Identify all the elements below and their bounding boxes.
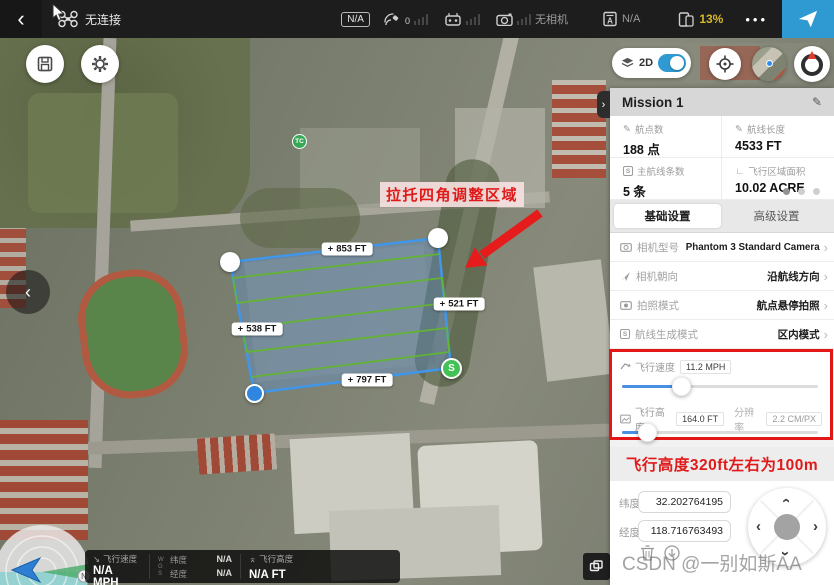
latitude-label: 纬度 xyxy=(619,496,640,511)
telemetry-speed: ↘飞行速度 N/A MPH xyxy=(85,550,149,583)
mission-header: Mission 1 ✎ xyxy=(610,88,834,116)
camera-icon xyxy=(496,13,513,26)
speed-slider-track[interactable] xyxy=(622,385,818,388)
map-mode-toggle[interactable]: 2D xyxy=(612,48,691,78)
mode-toggle-switch[interactable] xyxy=(658,54,686,72)
map-red-roofs xyxy=(197,433,277,474)
longitude-label: 经度 xyxy=(619,525,640,540)
chevron-left-icon: ‹ xyxy=(17,6,24,32)
start-point-marker[interactable]: S xyxy=(441,358,462,379)
back-button[interactable]: ‹ xyxy=(0,0,42,38)
speed-arrow-icon: ↘ xyxy=(93,554,100,565)
resolution-value: 2.2 CM/PX xyxy=(766,412,822,426)
move-cross-icon: + xyxy=(440,299,446,310)
stat-route-length: ✎航线长度 4533 FT xyxy=(722,116,834,158)
corner-handle[interactable] xyxy=(220,252,240,272)
telemetry-coords: WGS 纬度N/A 经度N/A xyxy=(150,550,240,583)
camera-status: 无相机 xyxy=(496,11,568,27)
nudge-left-button[interactable]: ‹ xyxy=(756,519,761,534)
corner-handle[interactable] xyxy=(428,228,448,248)
crosshair-icon xyxy=(716,55,734,73)
telemetry-bar: ↘飞行速度 N/A MPH WGS 纬度N/A 经度N/A ⌅飞行高度 N/A … xyxy=(85,550,400,583)
more-menu-button[interactable]: ••• xyxy=(745,12,768,27)
mission-panel: › Mission 1 ✎ ✎航点数 188 点 ✎航线长度 4533 FT S… xyxy=(610,88,834,585)
panel-collapse-tab[interactable]: › xyxy=(597,91,610,118)
save-mission-button[interactable] xyxy=(26,45,64,83)
chevron-left-icon: ‹ xyxy=(25,282,31,303)
drag-corners-hint: 拉托四角调整区域 xyxy=(380,182,524,207)
stat-waypoints: ✎航点数 188 点 xyxy=(610,116,722,158)
route-pen-icon: ✎ xyxy=(735,124,743,135)
satellite-count: 0 xyxy=(405,16,410,26)
chevron-right-icon: › xyxy=(824,240,828,255)
route-mode-icon: S xyxy=(620,329,630,339)
battery-device-icon xyxy=(678,11,695,28)
save-icon xyxy=(36,55,54,73)
move-cross-icon: + xyxy=(348,375,354,386)
collapse-left-button[interactable]: ‹ xyxy=(6,270,50,314)
move-cross-icon: + xyxy=(238,324,244,335)
altitude-icon xyxy=(620,414,631,424)
stats-page-dots[interactable] xyxy=(783,188,820,195)
chevron-right-icon: › xyxy=(602,99,606,111)
minimap-button[interactable] xyxy=(752,47,786,81)
battery-percent: 13% xyxy=(699,12,723,26)
speed-slider-row: 飞行速度 11.2 MPH xyxy=(620,359,822,374)
altitude-icon: ⌅ xyxy=(249,554,256,565)
move-cross-icon: + xyxy=(328,244,334,255)
speed-icon xyxy=(620,361,631,372)
gps-status: 0 xyxy=(384,12,428,27)
altitude-value-field[interactable]: 164.0 FT xyxy=(676,412,724,426)
setting-camera-orientation[interactable]: 相机朝向 沿航线方向 › xyxy=(610,262,834,291)
map-poi-marker: TC xyxy=(292,134,307,149)
speed-slider-thumb[interactable] xyxy=(672,377,691,396)
remote-controller-icon xyxy=(444,12,462,26)
edge-length-label[interactable]: +797 FT xyxy=(342,374,393,387)
map-red-roofs xyxy=(0,420,88,540)
edge-length-label[interactable]: +853 FT xyxy=(322,243,373,256)
connection-label: 无连接 xyxy=(85,11,121,28)
rc-status xyxy=(444,12,480,26)
checklist-icon: A xyxy=(602,11,618,27)
tab-basic-settings[interactable]: 基础设置 xyxy=(614,204,721,228)
nudge-center-button[interactable] xyxy=(774,514,800,540)
settings-button[interactable] xyxy=(81,45,119,83)
map-buildings xyxy=(244,244,436,382)
setting-route-mode[interactable]: S 航线生成模式 区内模式 › xyxy=(610,320,834,349)
altitude-note: 飞行高度320ft左右为100m xyxy=(610,447,834,481)
ruler-icon: ∟ xyxy=(735,166,744,177)
takeoff-button[interactable] xyxy=(782,0,834,38)
tab-advanced-settings[interactable]: 高级设置 xyxy=(723,204,830,228)
speed-value-field[interactable]: 11.2 MPH xyxy=(680,360,731,374)
copy-icon xyxy=(589,559,604,574)
mission-stats: ✎航点数 188 点 ✎航线长度 4533 FT S主航线条数 5 条 ∟飞行区… xyxy=(610,116,834,200)
toggle-knob xyxy=(670,56,684,70)
csdn-watermark: CSDN @一别如斯AA xyxy=(622,549,834,576)
locate-button[interactable] xyxy=(709,48,741,80)
waypoint-pen-icon: ✎ xyxy=(623,124,631,135)
setting-camera-model[interactable]: 相机型号 Phantom 3 Standard Camera › xyxy=(610,233,834,262)
checklist-value: N/A xyxy=(622,13,640,25)
lines-icon: S xyxy=(623,166,633,176)
camera-icon xyxy=(620,242,632,252)
chevron-right-icon: › xyxy=(824,298,828,313)
hint-text: 拉托四角调整区域 xyxy=(386,184,518,205)
top-status-bar: ‹ 无连接 N/A 0 xyxy=(0,0,834,38)
layers-icon xyxy=(621,56,634,70)
map-trees-patch xyxy=(240,188,360,248)
checklist-status: A N/A xyxy=(602,11,640,27)
rc-signal-bars xyxy=(466,14,480,25)
camera-status-label: 无相机 xyxy=(535,11,568,27)
screenshot-copy-button[interactable] xyxy=(583,553,610,580)
corner-handle-selected[interactable] xyxy=(245,384,264,403)
photo-mode-icon xyxy=(620,300,632,310)
settings-tabs: 基础设置 高级设置 xyxy=(610,200,834,233)
wgs-label: WGS xyxy=(158,557,166,578)
direction-arrow-icon xyxy=(620,271,631,282)
battery-status: 13% xyxy=(678,11,723,28)
latitude-field[interactable]: 32.202764195 xyxy=(638,491,731,513)
telemetry-altitude: ⌅飞行高度 N/A FT xyxy=(241,550,323,583)
longitude-field[interactable]: 118.716763493 xyxy=(638,520,731,542)
altitude-slider-track[interactable] xyxy=(622,431,818,434)
gear-icon xyxy=(90,54,110,74)
satellite-icon xyxy=(384,12,401,27)
compass-needle-icon xyxy=(797,49,827,79)
map-buildings xyxy=(533,259,615,381)
gps-signal-bars xyxy=(414,14,428,25)
attitude-compass: N xyxy=(0,524,92,585)
mouse-cursor xyxy=(52,4,66,22)
compass-reset-button[interactable] xyxy=(794,46,830,82)
chevron-right-icon: › xyxy=(824,269,828,284)
edit-mission-icon[interactable]: ✎ xyxy=(812,95,822,109)
altitude-slider-thumb[interactable] xyxy=(638,423,657,442)
minimap-position-dot xyxy=(766,60,773,67)
connection-status: 无连接 xyxy=(58,10,121,28)
chevron-right-icon: › xyxy=(824,327,828,342)
airplane-icon xyxy=(797,8,819,30)
svg-text:A: A xyxy=(607,17,613,26)
mission-title: Mission 1 xyxy=(622,95,812,110)
stat-main-lines: S主航线条数 5 条 xyxy=(610,158,722,200)
nudge-up-button[interactable]: › xyxy=(778,498,793,503)
camera-signal-bars xyxy=(517,14,531,25)
map-mode-label: 2D xyxy=(639,57,653,69)
status-na-badge: N/A xyxy=(341,12,370,27)
flight-sliders-highlight: 飞行速度 11.2 MPH 飞行高度 164.0 FT 分辨率 2.2 CM/P… xyxy=(609,349,833,440)
app-root: 拉托四角调整区域 +853 FT +521 FT +538 FT +797 FT… xyxy=(0,0,834,585)
nudge-right-button[interactable]: › xyxy=(813,519,818,534)
edge-length-label[interactable]: +538 FT xyxy=(232,323,283,336)
setting-photo-mode[interactable]: 拍照模式 航点悬停拍照 › xyxy=(610,291,834,320)
edge-length-label[interactable]: +521 FT xyxy=(434,298,485,311)
